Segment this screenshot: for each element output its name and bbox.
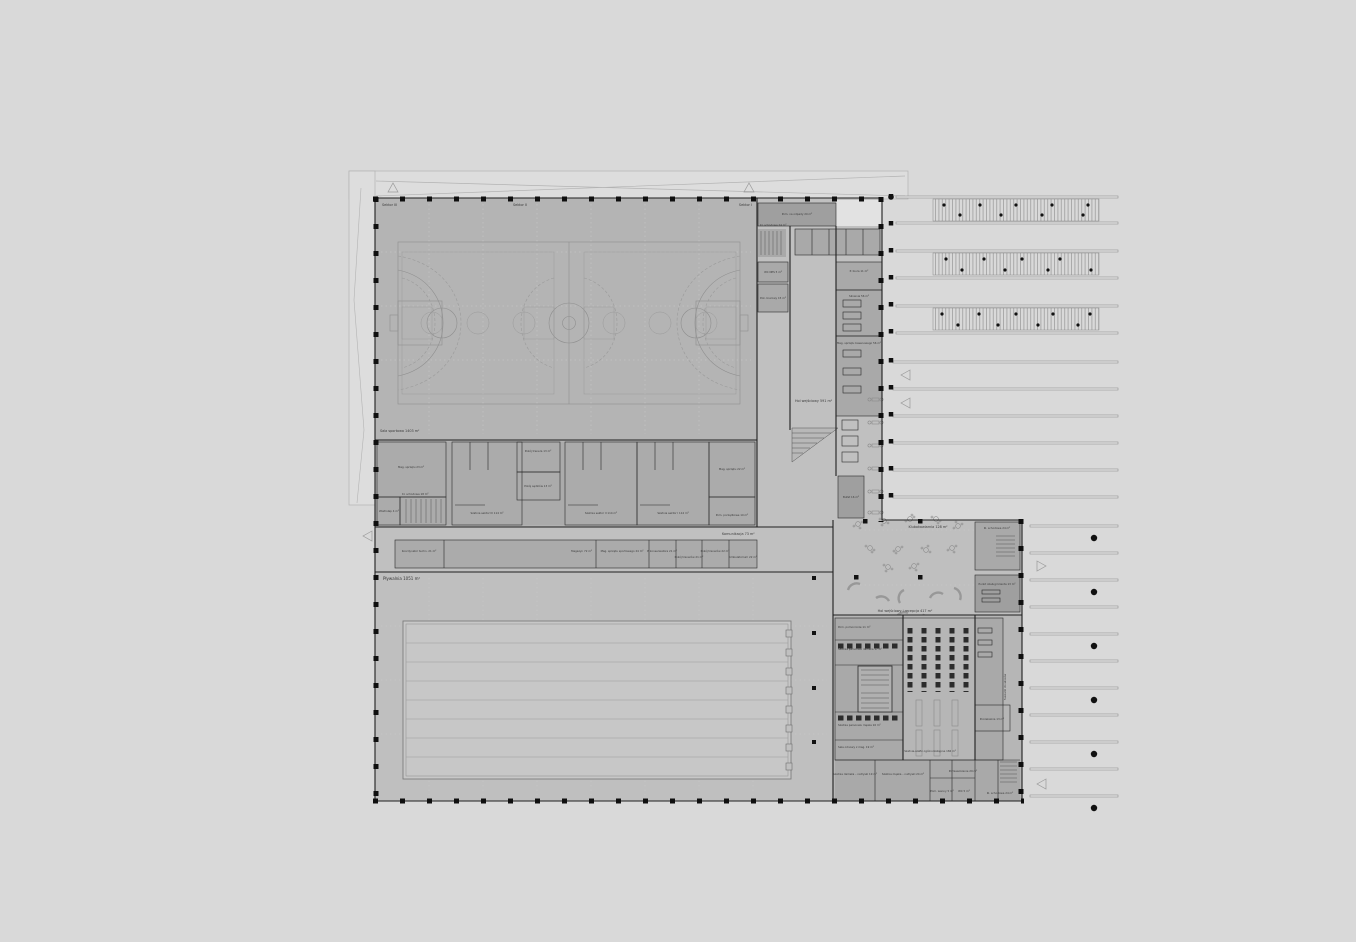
label-foyer-reception: Hol wejściowy i recepcja 417 m² [878, 609, 933, 613]
label-mag-equip-22: Mag. sprzętu 22 m² [719, 467, 745, 471]
label-storage-72: Magazyn 72 m² [571, 549, 592, 553]
label-sector-2: Sektor II [513, 203, 527, 207]
label-hair-dryers: Suszarki do włosów [1003, 673, 1007, 700]
label-stair-d: Kl. schodowa 24 m² [987, 791, 1013, 795]
label-stair-c: Kl. schodowa 24 m² [984, 526, 1010, 530]
label-service-desk: Punkt obsługi klienta 13 m² [979, 582, 1016, 586]
floor-plan-drawing: Sektor III Sektor II Sektor I Sala sport… [0, 0, 1356, 942]
locker-band [377, 442, 755, 525]
label-coaches-22: Pokój trenerów 22 m² [701, 549, 730, 553]
label-maintenance: P. konserwatora 21 m² [647, 549, 677, 553]
label-showers-m: Szatnia męska – natryski 24 m² [882, 772, 924, 776]
label-coach-room: Pokój trenera 13 m² [525, 449, 552, 453]
label-corridor: Komunikacja 73 m² [722, 532, 755, 536]
label-sector-1: Sektor I [739, 203, 752, 207]
label-office-15: Pok. biurowy 15 m² [760, 296, 786, 300]
label-locker-s1: Szatnia sektor I 114 m² [657, 511, 688, 515]
label-public-lockers: Szatnia-szafki ogólnodostępne 184 m² [904, 749, 956, 753]
label-referees-room: Pokój sędziów 13 m² [524, 484, 551, 488]
stair-core-icon [858, 666, 892, 712]
label-stair-b: Kl. schodowa 24 m² [760, 223, 786, 227]
label-gym-56: Siłownia 56 m² [849, 294, 869, 298]
entry-porch [836, 200, 882, 226]
label-waste-room: Pom. na odpady 20 m² [782, 212, 813, 216]
label-cafe: Klubokawiarnia 128 m² [908, 525, 948, 529]
label-pool: Pływalnia 1051 m² [383, 576, 420, 581]
label-pool-storage: Mag. sprzętu basenowego 56 m² [837, 341, 881, 345]
label-room-29: Pomieszczenie 29 m² [949, 769, 977, 773]
label-recovery-room: Sala odnowy z mag. 19 m² [838, 745, 874, 749]
label-sports-hall: Sala sportowa 1403 m² [380, 429, 420, 433]
label-staff-locker-m: Szatnia personelu męska 16 m² [838, 723, 881, 727]
label-aux-room: Pom. pomocnicze 11 m² [838, 625, 870, 629]
label-cleaning-room: Pom. porządkowe 10 m² [716, 513, 749, 517]
label-coordinator: Koordynator techn. 21 m² [402, 549, 437, 553]
label-vestibule: Wiatrołap 4 m² [379, 509, 399, 513]
label-locker-s3: Szatnia sektor III 114 m² [471, 511, 504, 515]
label-buffet: Bufet 16 m² [843, 495, 859, 499]
label-coaches-21: Pokój trenerów 21 m² [675, 555, 704, 559]
label-wc-5: WC 5 m² [958, 789, 970, 793]
label-stair-a: Kl. schodowa 18 m² [402, 492, 428, 496]
label-foyer: Hol wejściowy 591 m² [795, 399, 833, 403]
label-wc-nps: WC NPS 5 m² [764, 270, 782, 274]
label-waiting-room: Poczekalnia 13 m² [980, 717, 1005, 721]
label-sector-3: Sektor III [382, 203, 397, 207]
label-sport-storage: Mag. sprzętu sportowego 24 m² [601, 549, 644, 553]
label-ambulatory: Ambulatorium 22 m² [729, 555, 757, 559]
label-staff-locker-f: Szatnia personelu damska 17 m² [838, 647, 882, 651]
service-band [395, 540, 757, 568]
label-locker-s2: Szatnia sektor II 114 m² [585, 511, 617, 515]
label-office-11: P. biura 11 m² [850, 269, 869, 273]
label-showers-f: Szatnia damska – natryski 19 m² [833, 772, 877, 776]
label-tub-room: Pom. wanny 5 m² [930, 789, 953, 793]
foyer-right-rooms [975, 522, 1020, 612]
floor-plan-canvas: Sektor III Sektor II Sektor I Sala sport… [0, 0, 1356, 942]
label-mag-equip-23: Mag. sprzętu 23 m² [398, 465, 424, 469]
